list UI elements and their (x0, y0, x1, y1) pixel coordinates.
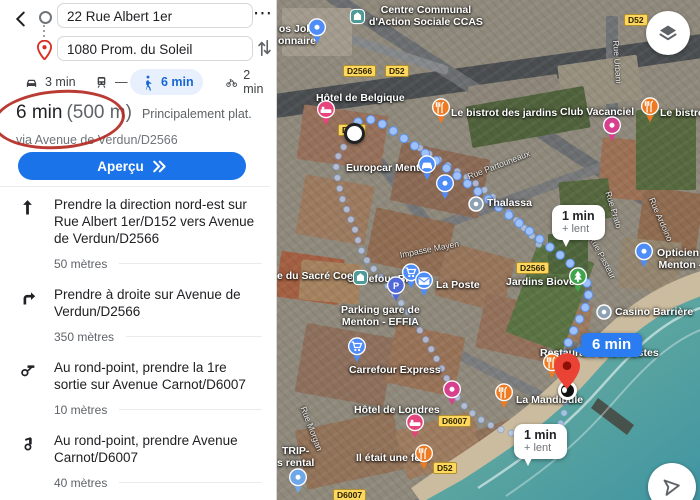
road-badge-d2566: D2566 (343, 65, 376, 77)
direction-steps-list: Prendre la direction nord-est sur Rue Al… (0, 186, 270, 500)
poi-label-trip-rental-truncated[interactable]: TRIP-s rental (277, 446, 314, 469)
step-body: Au rond-point, prendre Avenue Carnot/D60… (54, 432, 270, 496)
alt-note: + lent (524, 442, 557, 454)
poi-pin-jardins-bioves[interactable] (568, 267, 588, 298)
mode-tab-bike[interactable]: 2 min (216, 69, 276, 95)
direction-step[interactable]: Prendre à droite sur Avenue de Verdun/D2… (0, 277, 270, 350)
poi-pin-shop-pin[interactable] (435, 174, 455, 205)
step-distance-row: 50 mètres (54, 250, 262, 277)
divider (126, 336, 262, 337)
route-summary: 6 min(500 m)Principalement plat. (16, 102, 252, 124)
poi-pin-casino-barriere[interactable] (596, 304, 612, 325)
step-distance: 50 mètres (54, 257, 107, 271)
directions-panel: 22 Rue Albert 1er 1080 Prom. du Soleil ⋯… (0, 0, 277, 500)
poi-pin-ccas[interactable] (349, 8, 366, 30)
poi-pin-hotel-de-belgique[interactable] (316, 100, 336, 131)
route-duration: 6 min (16, 102, 62, 123)
alt-time: 1 min (562, 209, 595, 223)
terrain-note: Principalement plat. (142, 107, 252, 121)
svg-text:P: P (393, 281, 399, 291)
maneuver-turn-right-icon (0, 286, 54, 350)
step-body: Prendre à droite sur Avenue de Verdun/D2… (54, 286, 270, 350)
road-badge-d6007: D6007 (333, 489, 366, 500)
direction-step[interactable]: Au rond-point, prendre la 1re sortie sur… (0, 350, 270, 423)
step-distance: 350 mètres (54, 330, 114, 344)
main-walking-route (354, 115, 593, 371)
maneuver-straight-icon (0, 196, 54, 277)
layers-icon (656, 21, 680, 45)
double-chevron-icon (151, 160, 167, 173)
alternate-route-badge[interactable]: 1 min+ lent (552, 205, 605, 240)
poi-pin-opticien[interactable] (634, 242, 654, 273)
poi-pin-carrefour-express[interactable] (347, 337, 367, 368)
navigation-arrow-icon (658, 473, 685, 500)
direction-step[interactable]: Au rond-point, prendre Avenue Carnot/D60… (0, 423, 270, 496)
alternate-route-badge[interactable]: 1 min+ lent (514, 424, 567, 459)
step-distance-row: 40 mètres (54, 469, 262, 496)
poi-pin-le-bistro-truncated[interactable] (640, 97, 660, 128)
road-badge-d52: D52 (624, 14, 648, 26)
travel-mode-tabs: 3 min—6 min2 min (0, 69, 276, 97)
preview-button[interactable]: Aperçu (18, 152, 246, 180)
road-badge-d52: D52 (385, 65, 409, 77)
poi-label-le-bistrot-des-jardins[interactable]: Le bistrot des jardins (451, 108, 557, 120)
step-body: Prendre la direction nord-est sur Rue Al… (54, 196, 270, 277)
poi-label-sacre-coeur-truncated[interactable]: e du Sacré Coeur (277, 271, 363, 283)
route-via: via Avenue de Verdun/D2566 (16, 133, 178, 147)
road-badge-d52: D52 (433, 462, 457, 474)
route-time-badge: 6 min (581, 333, 642, 357)
destination-input[interactable]: 1080 Prom. du Soleil (57, 36, 253, 61)
poi-label-casino-barriere[interactable]: Casino Barrière (615, 307, 693, 319)
satellite-map[interactable]: Rue UrbaniRue PartouneauxImpasse MayenRu… (276, 0, 700, 500)
route-start-marker[interactable] (344, 123, 365, 144)
poi-label-ccas[interactable]: Centre Communald'Action Sociale CCAS (369, 5, 483, 28)
transit-icon (93, 74, 110, 91)
destination-pin-icon (37, 40, 52, 65)
poi-pin-trip-rental-truncated[interactable] (288, 468, 308, 499)
poi-pin-la-mandibule[interactable] (494, 383, 514, 414)
back-chevron-icon (10, 8, 32, 30)
poi-pin-beach-shop-pink[interactable] (442, 380, 462, 411)
divider (119, 409, 262, 410)
poi-label-club-vacanciel[interactable]: Club Vacanciel (560, 107, 634, 119)
destination-marker[interactable] (554, 353, 580, 394)
back-button[interactable] (8, 6, 34, 32)
poi-pin-sacre-coeur-truncated[interactable] (352, 269, 369, 291)
google-maps-directions-app: 22 Rue Albert 1er 1080 Prom. du Soleil ⋯… (0, 0, 700, 500)
drive-icon (23, 74, 40, 91)
poi-label-hotel-de-londres[interactable]: Hôtel de Londres (354, 405, 440, 417)
mode-time-label: — (115, 75, 128, 89)
step-instruction: Au rond-point, prendre la 1re sortie sur… (54, 359, 262, 393)
mode-tab-walk[interactable]: 6 min (130, 69, 203, 95)
overflow-menu-icon[interactable]: ⋯ (252, 2, 274, 25)
maneuver-roundabout-right-icon (0, 359, 54, 423)
alt-time: 1 min (524, 428, 557, 442)
mode-time-label: 2 min (243, 68, 267, 96)
mode-tab-drive[interactable]: 3 min (14, 69, 85, 95)
route-distance: (500 m) (66, 102, 131, 123)
step-distance-row: 350 mètres (54, 323, 262, 350)
swap-waypoints-button[interactable] (254, 36, 274, 60)
waypoint-dots (43, 25, 45, 37)
poi-pin-le-bistrot-des-jardins[interactable] (431, 98, 451, 129)
step-distance: 10 mètres (54, 403, 107, 417)
step-distance-row: 10 mètres (54, 396, 262, 423)
road-badge-d2566: D2566 (516, 262, 549, 274)
poi-pin-hotel-de-londres[interactable] (405, 413, 425, 444)
poi-label-opticien[interactable]: Opticien KrMenton - E (657, 248, 700, 271)
step-body: Au rond-point, prendre la 1re sortie sur… (54, 359, 270, 423)
map-layers-button[interactable] (646, 11, 690, 55)
road-badge-d6007: D6007 (438, 415, 471, 427)
mode-time-label: 3 min (45, 75, 76, 89)
direction-step[interactable]: Prendre à gauche sur Rue Albini/D5250 mè… (0, 496, 270, 500)
poi-pin-europcar-menton[interactable] (417, 155, 437, 186)
poi-label-parking-gare-effia[interactable]: Parking gare deMenton - EFFIA (341, 305, 420, 328)
poi-label-la-poste[interactable]: La Poste (436, 280, 480, 292)
mode-time-label: 6 min (161, 75, 194, 89)
bike-icon (225, 74, 238, 91)
origin-input[interactable]: 22 Rue Albert 1er (57, 3, 253, 28)
poi-pin-thalassa[interactable] (468, 196, 484, 217)
step-instruction: Au rond-point, prendre Avenue Carnot/D60… (54, 432, 262, 466)
alt-note: + lent (562, 223, 595, 235)
poi-pin-shop-pin-pink[interactable] (602, 116, 622, 147)
step-distance: 40 mètres (54, 476, 107, 490)
poi-label-le-bistro-truncated[interactable]: Le bistro (660, 108, 700, 120)
walk-icon (139, 74, 156, 91)
poi-label-thalassa[interactable]: Thalassa (487, 198, 532, 210)
poi-pin-clos-joly-truncated[interactable] (307, 18, 327, 49)
preview-label: Aperçu (97, 159, 144, 174)
maneuver-roundabout-straight-icon (0, 432, 54, 496)
poi-pin-la-poste[interactable] (414, 271, 434, 302)
divider (119, 263, 262, 264)
divider (119, 482, 262, 483)
mode-tab-transit[interactable]: — (84, 69, 137, 95)
step-instruction: Prendre la direction nord-est sur Rue Al… (54, 196, 262, 247)
poi-pin-parking-gare-effia[interactable]: P (386, 276, 406, 307)
step-instruction: Prendre à droite sur Avenue de Verdun/D2… (54, 286, 262, 320)
direction-step[interactable]: Prendre la direction nord-est sur Rue Al… (0, 187, 270, 277)
origin-dot-icon (39, 11, 52, 24)
poi-pin-il-etait-une-fois[interactable] (414, 444, 434, 475)
